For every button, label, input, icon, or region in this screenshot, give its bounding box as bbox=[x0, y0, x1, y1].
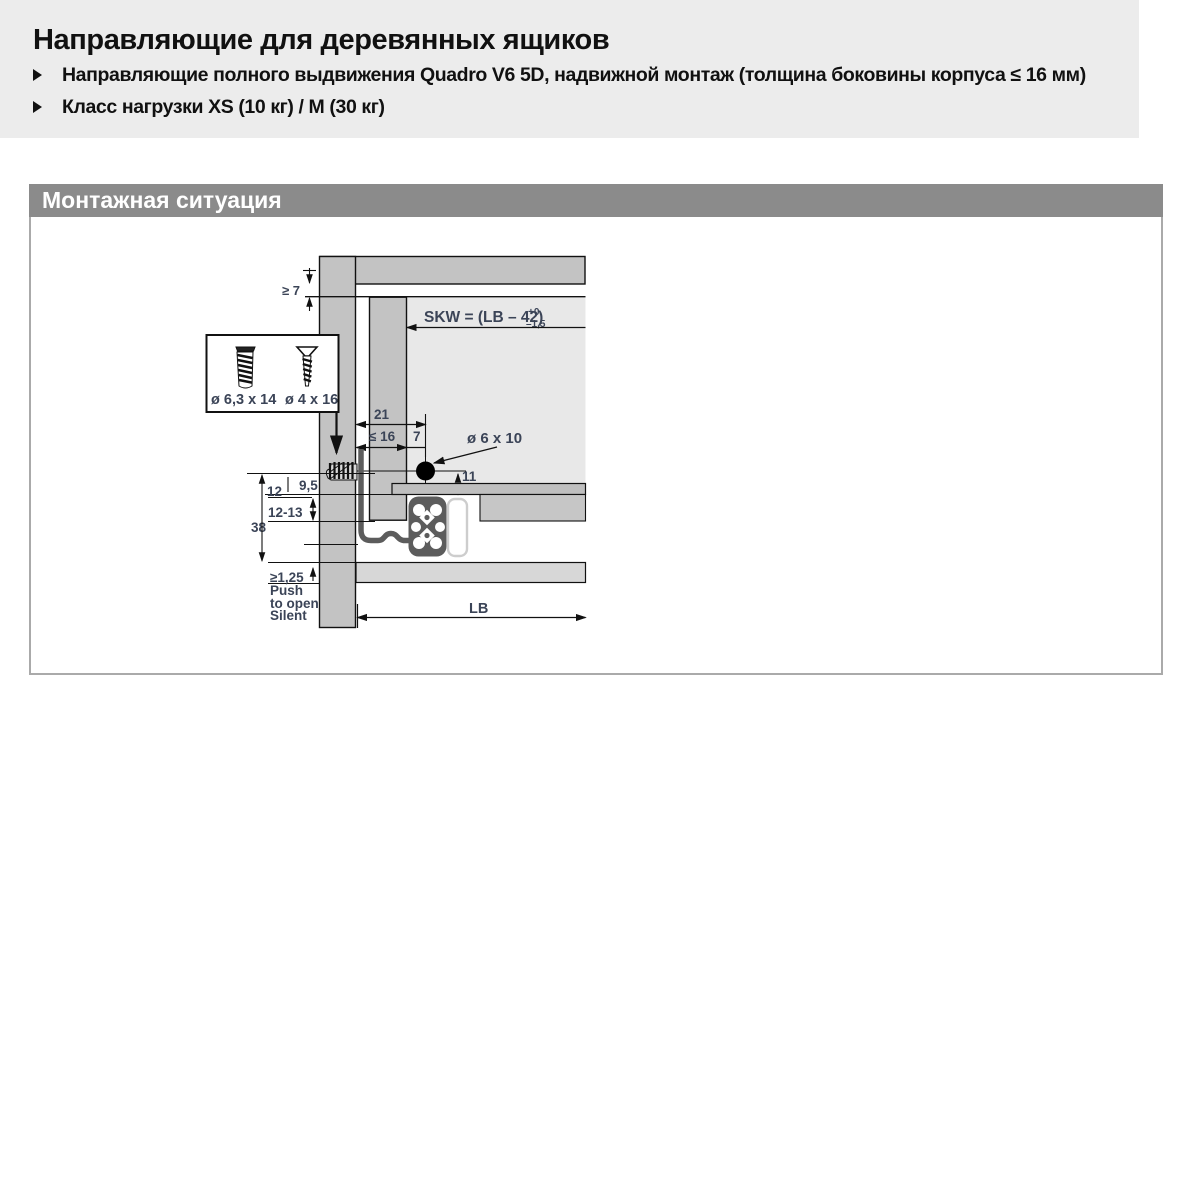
svg-text:–1,5: –1,5 bbox=[526, 319, 546, 330]
svg-text:11: 11 bbox=[462, 469, 477, 484]
svg-text:21: 21 bbox=[374, 407, 390, 422]
svg-text:9,5: 9,5 bbox=[299, 478, 318, 493]
svg-text:+0: +0 bbox=[528, 307, 540, 318]
svg-text:LB: LB bbox=[469, 601, 488, 617]
svg-text:7: 7 bbox=[413, 429, 421, 444]
svg-text:ø 6,3 x 14: ø 6,3 x 14 bbox=[211, 392, 276, 408]
svg-text:≤ 16: ≤ 16 bbox=[369, 429, 396, 444]
svg-text:ø 6 x 10: ø 6 x 10 bbox=[467, 430, 522, 447]
svg-text:12-13: 12-13 bbox=[268, 505, 303, 520]
svg-text:38: 38 bbox=[251, 520, 267, 535]
svg-text:≥ 7: ≥ 7 bbox=[282, 283, 300, 298]
svg-text:ø 4 x 16: ø 4 x 16 bbox=[285, 392, 338, 408]
svg-text:12: 12 bbox=[267, 484, 282, 499]
svg-text:Silent: Silent bbox=[270, 608, 307, 623]
